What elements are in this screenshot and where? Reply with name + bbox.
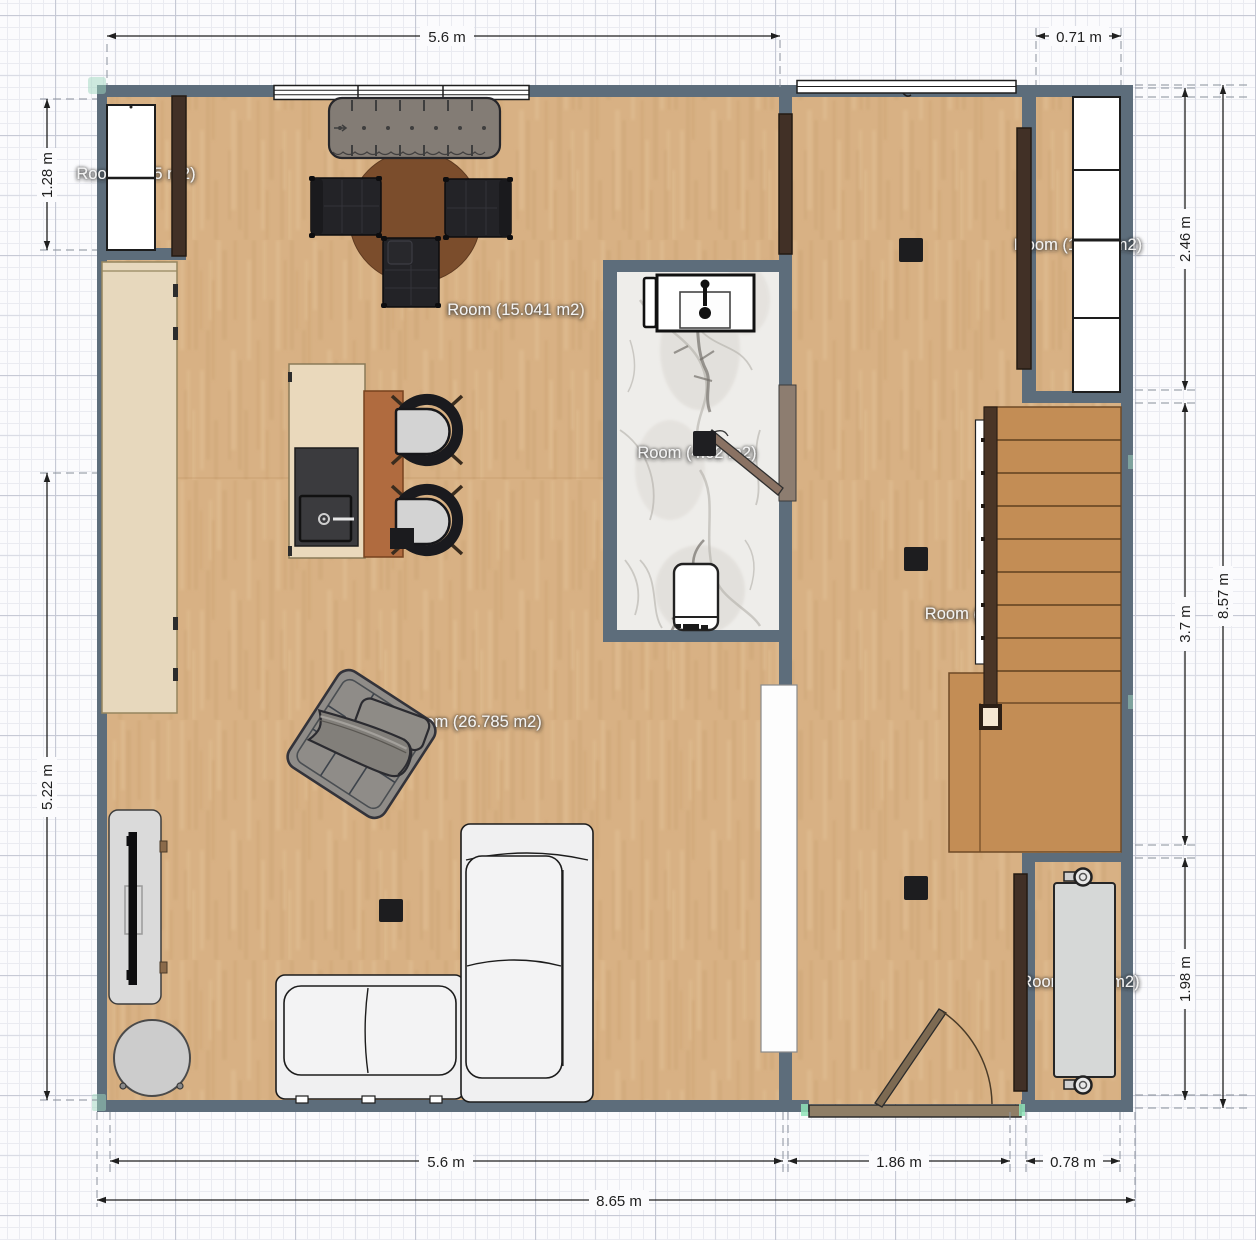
svg-text:5.6 m: 5.6 m	[427, 1154, 465, 1171]
svg-text:1.86 m: 1.86 m	[876, 1154, 922, 1171]
svg-text:Room (15.041 m2): Room (15.041 m2)	[447, 301, 585, 319]
svg-text:0.78 m: 0.78 m	[1050, 1154, 1096, 1171]
svg-text:8.57 m: 8.57 m	[1215, 573, 1232, 619]
svg-text:3.7 m: 3.7 m	[1177, 605, 1194, 643]
svg-text:0.71 m: 0.71 m	[1056, 29, 1102, 46]
svg-text:1.28 m: 1.28 m	[39, 152, 56, 198]
svg-text:2.46 m: 2.46 m	[1177, 216, 1194, 262]
svg-text:5.6 m: 5.6 m	[428, 29, 466, 46]
svg-text:8.65 m: 8.65 m	[596, 1193, 642, 1210]
svg-text:1.98 m: 1.98 m	[1177, 956, 1194, 1002]
svg-text:5.22 m: 5.22 m	[39, 764, 56, 810]
